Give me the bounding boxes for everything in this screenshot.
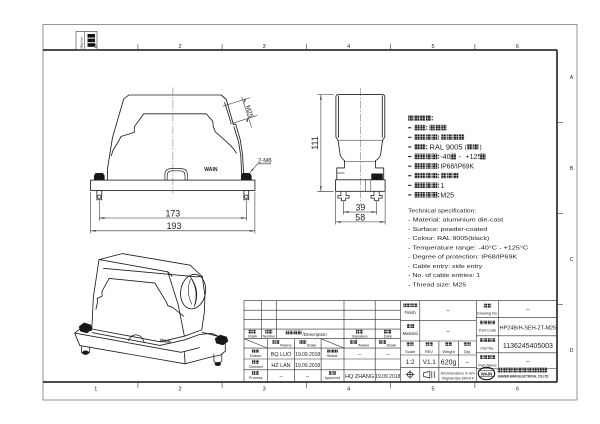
svg-text:Finish: Finish — [405, 310, 417, 315]
svg-text:Weight: Weight — [442, 349, 455, 354]
svg-text:2: 2 — [178, 44, 181, 50]
svg-text:–: – — [358, 352, 361, 358]
svg-text:5: 5 — [431, 387, 434, 393]
svg-text:IP68/IP69K: IP68/IP69K — [440, 164, 474, 171]
svg-text:- Colour: RAL 9005(black): - Colour: RAL 9005(black) — [408, 236, 489, 242]
svg-text:4: 4 — [347, 44, 350, 50]
svg-text:620g: 620g — [441, 360, 457, 367]
svg-text:1: 1 — [94, 44, 97, 50]
svg-text:All Dimensions in mm: All Dimensions in mm — [441, 371, 475, 375]
svg-text:Drawing No.: Drawing No. — [477, 311, 498, 315]
svg-text:BQ LUO: BQ LUO — [271, 352, 291, 358]
svg-text:Scale: Scale — [405, 349, 416, 354]
svg-text:Mfg Des: Mfg Des — [80, 37, 84, 49]
svg-text:XIAMEN WAIN ELECTRICAL CO.LTD: XIAMEN WAIN ELECTRICAL CO.LTD — [498, 375, 549, 379]
svg-text:19.09.2018: 19.09.2018 — [295, 352, 320, 358]
svg-text:Material: Material — [403, 331, 418, 336]
svg-text:Part No.: Part No. — [481, 346, 495, 350]
svg-text:Mark: Mark — [248, 334, 257, 339]
svg-text:Signature: Signature — [351, 335, 367, 339]
svg-text:- No. of cable entries: 1: - No. of cable entries: 1 — [408, 273, 480, 279]
svg-text:- Material: aluminium die-cast: - Material: aluminium die-cast — [408, 218, 504, 224]
svg-text:HQ ZHANG: HQ ZHANG — [345, 374, 374, 380]
svg-text:/Date: /Date — [307, 342, 317, 347]
svg-text:D: D — [570, 348, 574, 354]
svg-text:Original Size DIN A 4: Original Size DIN A 4 — [442, 377, 474, 381]
svg-text:Part Code: Part Code — [479, 329, 496, 333]
svg-text:2: 2 — [178, 387, 181, 393]
svg-text:RAL 9005: RAL 9005 — [430, 144, 463, 151]
svg-text:Approved: Approved — [325, 376, 340, 380]
svg-text:Drawn: Drawn — [250, 353, 262, 358]
svg-text:Part Name: Part Name — [478, 363, 496, 367]
svg-text:39: 39 — [356, 203, 366, 213]
svg-text:1: 1 — [440, 183, 444, 190]
svg-text:–: – — [306, 374, 309, 380]
svg-text:- Thread size: M25: - Thread size: M25 — [408, 282, 466, 288]
svg-text:Stand.: Stand. — [327, 353, 339, 358]
svg-text:–: – — [386, 352, 389, 358]
svg-text:3: 3 — [263, 44, 266, 50]
svg-text:19.09.2018: 19.09.2018 — [295, 363, 320, 369]
svg-text:HZ LAN: HZ LAN — [271, 363, 290, 369]
svg-text:- Degree of protection: IP68/I: - Degree of protection: IP68/IP69K — [408, 255, 517, 261]
svg-text:V1.1: V1.1 — [423, 359, 437, 366]
svg-text:Checked: Checked — [249, 365, 263, 369]
svg-text:19.09.2018: 19.09.2018 — [375, 374, 400, 380]
svg-text:111: 111 — [310, 136, 320, 149]
svg-text:- Cable entry: side entry: - Cable entry: side entry — [408, 264, 482, 270]
svg-text:5: 5 — [431, 44, 434, 50]
svg-text:1:2: 1:2 — [406, 359, 415, 366]
svg-text:Process: Process — [249, 376, 263, 380]
svg-text:REV.: REV. — [425, 349, 434, 354]
svg-text:Technical specification:: Technical specification: — [408, 208, 477, 214]
svg-text:1: 1 — [94, 387, 97, 393]
svg-text:C: C — [570, 257, 574, 263]
svg-text:/Name: /Name — [280, 342, 293, 347]
svg-text:/Description: /Description — [303, 332, 328, 337]
svg-text:193: 193 — [167, 221, 182, 231]
svg-text:+125: +125 — [466, 154, 482, 161]
svg-text:–: – — [280, 374, 283, 380]
svg-text:1136245405003: 1136245405003 — [503, 343, 553, 350]
svg-text:4: 4 — [347, 387, 350, 393]
svg-text:Number: Number — [263, 335, 277, 339]
svg-text:Date: Date — [384, 334, 393, 339]
svg-text:2-M6: 2-M6 — [258, 159, 272, 165]
svg-text:WAIN: WAIN — [204, 167, 217, 173]
svg-text:M25: M25 — [440, 192, 454, 199]
svg-text:- Temperature range: -40°C - +: - Temperature range: -40°C - +125°C — [408, 245, 528, 251]
svg-text:6: 6 — [516, 387, 519, 393]
svg-text:WAIN: WAIN — [481, 372, 493, 377]
svg-text:/Date: /Date — [387, 342, 397, 347]
svg-text:- Surface: powder-coated: - Surface: powder-coated — [408, 227, 487, 233]
svg-text:173: 173 — [165, 209, 180, 219]
svg-text:): ) — [480, 144, 482, 151]
svg-text:Qty.: Qty. — [464, 349, 471, 354]
svg-text:58: 58 — [355, 212, 365, 222]
svg-text:6: 6 — [516, 44, 519, 50]
svg-text:HP24B/H-SEH-2T-M25: HP24B/H-SEH-2T-M25 — [500, 325, 557, 331]
svg-text:-40: -40 — [440, 154, 450, 161]
svg-text:3: 3 — [263, 387, 266, 393]
svg-text:/Name: /Name — [358, 342, 371, 347]
